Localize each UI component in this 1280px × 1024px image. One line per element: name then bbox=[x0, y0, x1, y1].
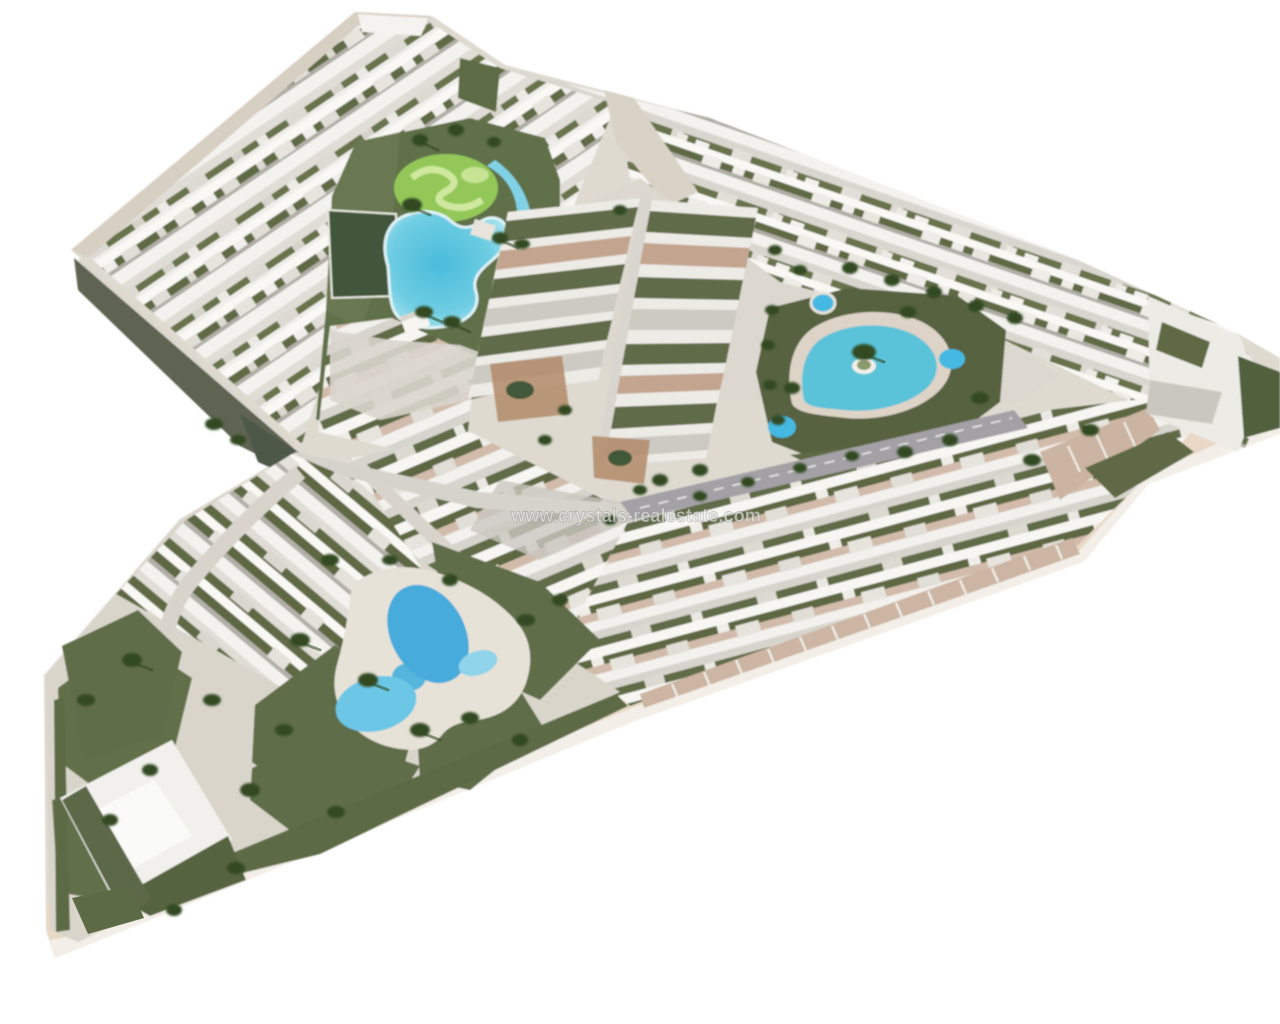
svg-text:www.crystals-realestate.com: www.crystals-realestate.com bbox=[510, 505, 761, 527]
